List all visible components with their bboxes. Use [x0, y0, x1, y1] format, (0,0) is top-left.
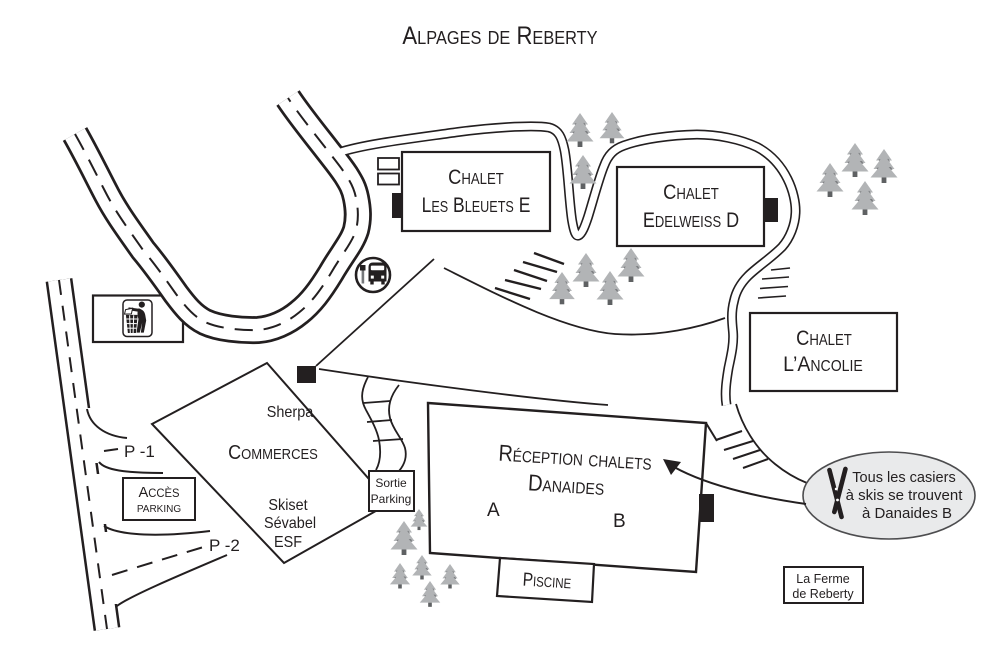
svg-text:A: A: [487, 500, 500, 521]
svg-text:LES BLEUETS E: LES BLEUETS E: [422, 193, 531, 217]
svg-text:La Ferme: La Ferme: [796, 572, 850, 586]
svg-text:Sévabel: Sévabel: [264, 515, 316, 533]
svg-text:Parking: Parking: [371, 492, 412, 506]
svg-text:PARKING: PARKING: [137, 504, 181, 515]
svg-text:Sortie: Sortie: [375, 476, 407, 490]
svg-text:Tous les casiers: Tous les casiers: [852, 470, 955, 486]
svg-text:P -2: P -2: [209, 536, 240, 555]
svg-text:B: B: [613, 511, 626, 532]
svg-text:de Reberty: de Reberty: [792, 587, 854, 601]
svg-text:à skis se trouvent: à skis se trouvent: [846, 487, 964, 504]
svg-text:P -1: P -1: [124, 442, 155, 461]
svg-text:à Danaides B: à Danaides B: [862, 505, 952, 522]
svg-text:ESF: ESF: [274, 534, 302, 552]
svg-text:COMMERCES: COMMERCES: [228, 442, 318, 464]
svg-text:ACCÈS: ACCÈS: [138, 485, 179, 501]
svg-text:Skiset: Skiset: [268, 497, 308, 515]
svg-text:ALPAGES DE REBERTY: ALPAGES DE REBERTY: [402, 23, 598, 51]
svg-text:Sherpa: Sherpa: [267, 404, 314, 422]
